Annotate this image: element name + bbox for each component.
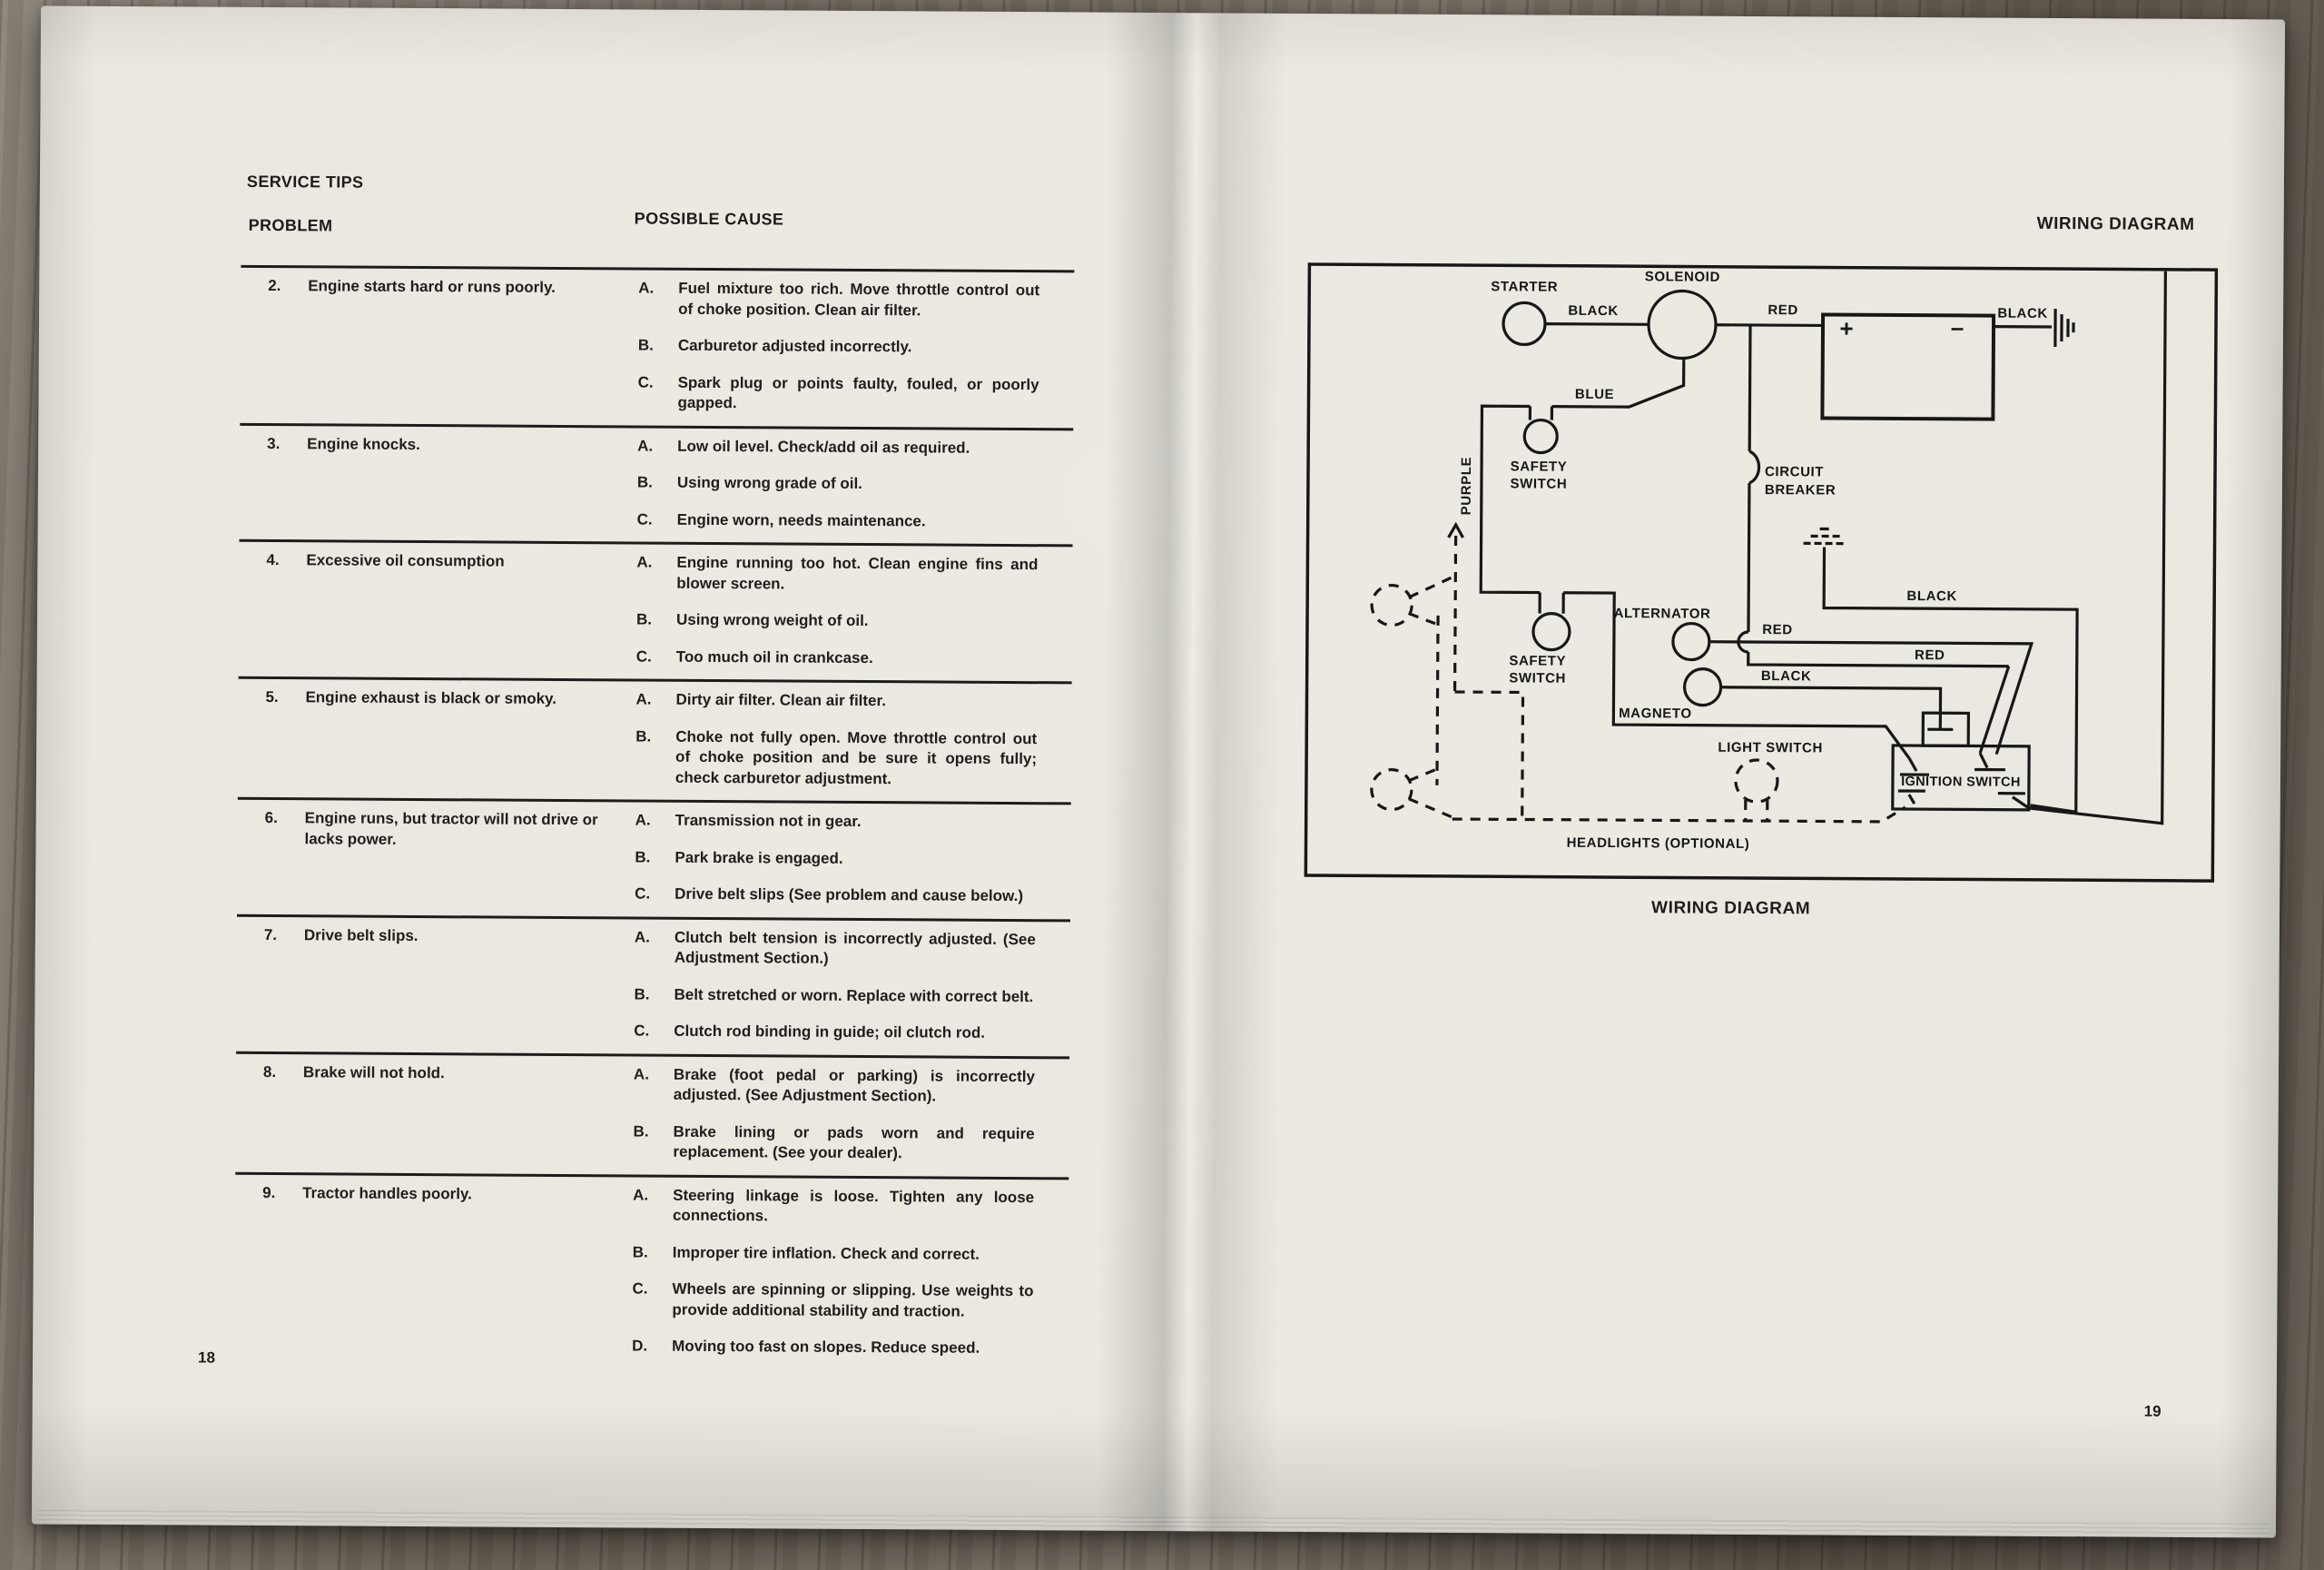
problem-cell: 5.Engine exhaust is black or smoky. (238, 687, 636, 790)
problem-number: 9. (261, 1182, 302, 1356)
cause-letter: A. (635, 689, 675, 710)
cause-item: B.Belt stretched or worn. Replace with c… (634, 984, 1069, 1007)
cause-text: Engine worn, needs maintenance. (677, 509, 1039, 532)
table-row: 4.Excessive oil consumptionA.Engine runn… (239, 539, 1073, 682)
dashed-arrow-icon (1449, 525, 1463, 538)
cause-item: C.Wheels are spinning or slipping. Use w… (632, 1279, 1068, 1322)
cause-letter: C. (632, 1279, 672, 1319)
ignition-terminals (1898, 713, 2030, 808)
cause-item: A.Brake (foot pedal or parking) is incor… (634, 1064, 1069, 1108)
cause-text: Low oil level. Check/add oil as required… (677, 436, 1039, 459)
cause-text: Transmission not in gear. (675, 811, 1037, 834)
cause-letter: A. (635, 927, 675, 968)
headlights-label: HEADLIGHTS (OPTIONAL) (1567, 835, 1750, 852)
problem-cell: 8.Brake will not hold. (235, 1061, 634, 1164)
circuit-breaker-label-2: BREAKER (1765, 482, 1836, 498)
headlight-top-circle (1372, 585, 1412, 625)
cause-item: B.Improper tire inflation. Check and cor… (633, 1242, 1068, 1265)
problem-text: Engine knocks. (307, 434, 607, 532)
safety-switch-top-label-1: SAFETY (1511, 459, 1568, 474)
problem-number: 5. (265, 687, 306, 787)
table-row: 8.Brake will not hold.A.Brake (foot peda… (235, 1051, 1069, 1177)
problem-text: Tractor handles poorly. (301, 1183, 602, 1358)
wire-solenoid-battery (1716, 325, 1823, 326)
cause-text: Choke not fully open. Move throttle cont… (675, 726, 1037, 790)
problem-text: Engine starts hard or runs poorly. (307, 276, 607, 415)
cause-letter: D. (632, 1336, 672, 1357)
wire-black-alternator (1720, 687, 1940, 713)
cause-letter: B. (635, 847, 675, 868)
wiring-diagram: STARTER SOLENOID BLACK RED + – BLACK BLU… (1304, 262, 2218, 883)
wire-breaker-rail-top (1749, 325, 1750, 451)
dashed-rail-1 (1455, 536, 1456, 692)
cause-text: Fuel mixture too rich. Move throttle con… (678, 279, 1039, 321)
wire-breaker-rail-bottom (1748, 483, 1749, 632)
dotted-ground-icon (1804, 528, 1844, 543)
alternator-label: ALTERNATOR (1614, 606, 1711, 622)
headlight-bottom-circle (1372, 769, 1412, 809)
cause-text: Wheels are spinning or slipping. Use wei… (672, 1279, 1033, 1322)
causes-cell: A.Low oil level. Check/add oil as requir… (637, 436, 1074, 534)
safety-switch-bottom-stubs (1540, 593, 1563, 614)
wire-label-red-breaker: RED (1915, 647, 1945, 663)
causes-cell: A.Engine running too hot. Clean engine f… (636, 552, 1073, 671)
cause-text: Brake (foot pedal or parking) is incorre… (674, 1064, 1035, 1107)
safety-switch-bottom-label-2: SWITCH (1509, 670, 1566, 686)
cause-text: Clutch rod binding in guide; oil clutch … (674, 1022, 1035, 1044)
photo-open-manual: SERVICE TIPS PROBLEM POSSIBLE CAUSE 2.En… (0, 0, 2324, 1570)
battery-plus: + (1839, 315, 1853, 342)
cause-letter: A. (636, 552, 676, 593)
cause-item: B.Park brake is engaged. (635, 847, 1070, 870)
wire-purple-rail (1481, 406, 1541, 592)
cause-letter: B. (636, 609, 676, 630)
safety-switch-bottom-circle (1533, 614, 1570, 650)
cause-text: Dirty air filter. Clean air filter. (675, 690, 1037, 713)
open-manual-book: SERVICE TIPS PROBLEM POSSIBLE CAUSE 2.En… (32, 5, 2285, 1537)
cause-item: C.Too much oil in crankcase. (636, 647, 1072, 669)
troubleshooting-table: 2.Engine starts hard or runs poorly.A.Fu… (234, 265, 1074, 1371)
table-row: 3.Engine knocks.A.Low oil level. Check/a… (240, 422, 1074, 544)
dashed-rail-2 (1437, 616, 1438, 785)
headlight-bottom-leads (1409, 769, 1452, 817)
cause-item: D.Moving too fast on slopes. Reduce spee… (632, 1336, 1068, 1358)
headlight-top-leads (1409, 576, 1455, 625)
wire-red-to-ignition (1980, 667, 2009, 754)
wire-label-red-battery: RED (1768, 302, 1798, 318)
wire-label-red-alternator: RED (1762, 622, 1793, 637)
cause-text: Drive belt slips (See problem and cause … (675, 884, 1036, 907)
cause-item: A.Fuel mixture too rich. Move throttle c… (638, 278, 1074, 321)
causes-cell: A.Steering linkage is loose. Tighten any… (632, 1185, 1068, 1361)
problem-cell: 7.Drive belt slips. (236, 924, 635, 1043)
table-row: 2.Engine starts hard or runs poorly.A.Fu… (240, 265, 1074, 428)
cause-letter: A. (638, 278, 678, 319)
wire-label-black-battery: BLACK (1997, 306, 2048, 321)
circuit-breaker-icon (1749, 451, 1759, 483)
wire-red-alternator (1709, 642, 2032, 755)
cause-letter: A. (637, 436, 677, 457)
cause-text: Spark plug or points faulty, fouled, or … (677, 372, 1039, 415)
cause-item: A.Dirty air filter. Clean air filter. (635, 689, 1071, 712)
table-row: 7.Drive belt slips.A.Clutch belt tension… (236, 913, 1070, 1056)
problem-number: 3. (267, 433, 308, 529)
page-number-right: 19 (2144, 1403, 2162, 1421)
column-header-possible-cause: POSSIBLE CAUSE (635, 209, 784, 229)
dashed-headlight-line (1452, 805, 1905, 822)
circuit-breaker-label-1: CIRCUIT (1765, 464, 1824, 479)
problem-cell: 2.Engine starts hard or runs poorly. (240, 276, 638, 415)
right-rail (2029, 271, 2166, 824)
cause-item: B.Carburetor adjusted incorrectly. (638, 335, 1074, 358)
cause-item: B.Choke not fully open. Move throttle co… (635, 726, 1071, 790)
cause-text: Carburetor adjusted incorrectly. (678, 336, 1039, 359)
problem-text: Brake will not hold. (302, 1062, 603, 1164)
problem-cell: 9.Tractor handles poorly. (234, 1182, 633, 1358)
light-switch-label: LIGHT SWITCH (1718, 740, 1823, 756)
page-header-wiring-diagram: WIRING DIAGRAM (2037, 214, 2195, 235)
diagram-border (1305, 264, 2216, 881)
wire-solenoid-stem (1551, 358, 1683, 408)
battery-minus: – (1951, 313, 1965, 341)
problem-text: Excessive oil consumption (306, 550, 606, 668)
cause-item: B.Brake lining or pads worn and require … (633, 1121, 1068, 1165)
safety-switch-top-label-2: SWITCH (1511, 476, 1568, 491)
cause-item: B.Using wrong grade of oil. (637, 472, 1073, 495)
diagram-caption: WIRING DIAGRAM (1651, 898, 1810, 919)
cause-text: Too much oil in crankcase. (676, 647, 1038, 669)
safety-switch-bottom-label-1: SAFETY (1509, 653, 1566, 668)
problem-number: 4. (266, 550, 307, 667)
cause-text: Brake lining or pads worn and require re… (673, 1121, 1034, 1164)
cause-letter: C. (637, 372, 677, 413)
problem-number: 6. (264, 808, 305, 904)
starter-label: STARTER (1491, 279, 1558, 294)
dashed-branch (1454, 692, 1523, 819)
table-row: 5.Engine exhaust is black or smoky.A.Dir… (238, 676, 1072, 803)
cause-letter: B. (633, 1121, 673, 1162)
wire-label-purple: PURPLE (1459, 457, 1474, 516)
cause-text: Clutch belt tension is incorrectly adjus… (675, 927, 1036, 970)
causes-cell: A.Brake (foot pedal or parking) is incor… (633, 1064, 1069, 1167)
problem-number: 8. (262, 1061, 303, 1161)
safety-switch-top-circle (1524, 420, 1557, 452)
problem-number: 7. (263, 924, 304, 1041)
causes-cell: A.Dirty air filter. Clean air filter.B.C… (635, 689, 1072, 792)
cause-item: A.Steering linkage is loose. Tighten any… (633, 1185, 1068, 1229)
cause-text: Belt stretched or worn. Replace with cor… (674, 984, 1035, 1007)
problem-cell: 3.Engine knocks. (240, 433, 638, 531)
wire-rail-to-red (1748, 652, 2009, 667)
wire-label-black-starter: BLACK (1568, 303, 1619, 319)
cause-text: Improper tire inflation. Check and corre… (673, 1242, 1034, 1265)
wire-black-ground (1823, 547, 2078, 812)
cause-letter: C. (637, 509, 677, 530)
cause-item: A.Transmission not in gear. (635, 810, 1071, 833)
alternator-circle (1673, 623, 1709, 659)
cause-item: C.Engine worn, needs maintenance. (637, 509, 1073, 532)
cause-letter: B. (633, 1242, 673, 1263)
cause-letter: A. (635, 810, 675, 831)
section-title: SERVICE TIPS (247, 173, 364, 193)
causes-cell: A.Clutch belt tension is incorrectly adj… (634, 927, 1070, 1046)
starter-circle (1503, 302, 1545, 344)
cause-letter: B. (635, 726, 675, 788)
cause-letter: C. (636, 647, 676, 667)
magneto-circle (1684, 669, 1720, 706)
cause-text: Moving too fast on slopes. Reduce speed. (672, 1337, 1033, 1359)
wire-label-black-alternator: BLACK (1761, 668, 1812, 684)
column-header-problem: PROBLEM (249, 216, 333, 236)
cause-item: C.Drive belt slips (See problem and caus… (635, 884, 1070, 906)
magneto-label: MAGNETO (1619, 706, 1692, 721)
cause-item: A.Low oil level. Check/add oil as requir… (637, 436, 1073, 459)
table-row: 6.Engine runs, but tractor will not driv… (237, 797, 1071, 919)
cause-item: A.Clutch belt tension is incorrectly adj… (635, 927, 1070, 971)
cause-letter: C. (634, 1021, 674, 1042)
cause-letter: B. (634, 984, 674, 1005)
causes-cell: A.Transmission not in gear.B.Park brake … (635, 810, 1071, 908)
cause-letter: B. (637, 472, 677, 493)
wire-label-blue: BLUE (1575, 387, 1614, 402)
causes-cell: A.Fuel mixture too rich. Move throttle c… (637, 278, 1074, 417)
table-row: 9.Tractor handles poorly.A.Steering link… (234, 1171, 1068, 1371)
cause-item: C.Clutch rod binding in guide; oil clutc… (634, 1021, 1069, 1043)
cause-text: Park brake is engaged. (675, 847, 1036, 870)
problem-text: Engine runs, but tractor will not drive … (304, 808, 605, 906)
problem-text: Drive belt slips. (303, 925, 604, 1043)
chassis-ground-icon (2055, 309, 2073, 347)
problem-cell: 6.Engine runs, but tractor will not driv… (237, 808, 635, 906)
cause-letter: B. (638, 335, 678, 356)
problem-text: Engine exhaust is black or smoky. (305, 687, 606, 789)
solenoid-label: SOLENOID (1645, 269, 1720, 285)
cause-letter: A. (634, 1064, 674, 1105)
safety-switch-top-stubs (1530, 406, 1551, 420)
cause-text: Steering linkage is loose. Tighten any l… (673, 1185, 1034, 1228)
cause-item: A.Engine running too hot. Clean engine f… (636, 552, 1072, 596)
solenoid-circle (1649, 291, 1716, 358)
problem-number: 2. (267, 276, 308, 413)
wire-label-black-ground: BLACK (1906, 588, 1957, 604)
cause-text: Using wrong weight of oil. (676, 610, 1038, 633)
cause-letter: C. (635, 884, 675, 904)
cause-text: Using wrong grade of oil. (677, 473, 1039, 496)
light-switch-circle (1736, 760, 1777, 802)
cause-letter: A. (633, 1185, 673, 1226)
page-number-left: 18 (198, 1349, 215, 1368)
cause-text: Engine running too hot. Clean engine fin… (676, 553, 1038, 596)
cause-item: B.Using wrong weight of oil. (636, 609, 1072, 632)
cause-item: C.Spark plug or points faulty, fouled, o… (637, 372, 1073, 416)
light-switch-stubs (1746, 800, 1768, 821)
problem-cell: 4.Excessive oil consumption (239, 550, 637, 669)
wire-starter-solenoid (1545, 324, 1649, 325)
ignition-switch-label: IGNITION SWITCH (1901, 775, 2021, 790)
